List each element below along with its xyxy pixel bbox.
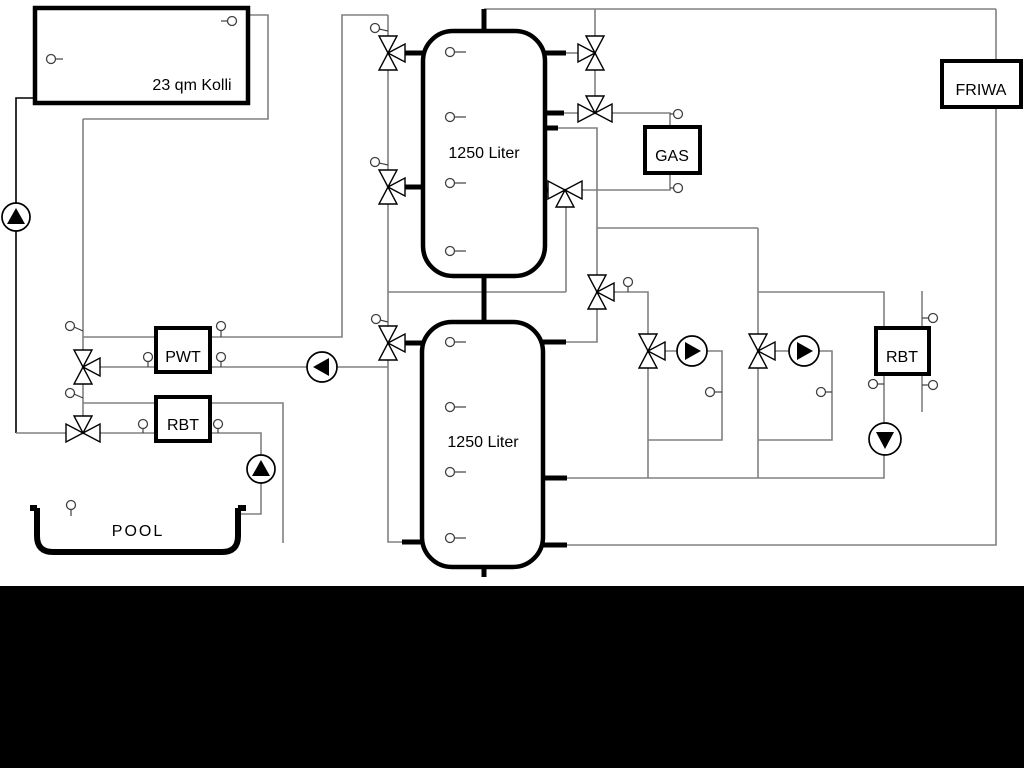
circuit2-sensor: [817, 388, 833, 397]
gas-return-sensor: [670, 184, 683, 193]
three-way-valve-tank1-right-top: [578, 36, 604, 70]
pwt-right-bottom-sensor: [217, 353, 226, 368]
heating-pump-2: [789, 336, 819, 366]
rbt-left-label: RBT: [167, 417, 199, 434]
three-way-valve-solar-pwt: [74, 350, 100, 384]
three-way-valve-gas-return: [548, 181, 582, 207]
collector-return-pipe: [16, 98, 35, 433]
pwt-left-sensor: [144, 353, 153, 368]
three-way-valve-tank2-left: [379, 326, 405, 360]
three-way-valve-tank1-left-mid: [379, 170, 405, 204]
bottom-black-band: [0, 586, 1024, 768]
pwt-right-top-sensor: [217, 322, 226, 338]
gas-supply-sensor: [670, 110, 683, 119]
solar-riser-sensor: [66, 322, 84, 332]
rbtl-right-sensor: [214, 420, 223, 434]
tank1-left-top-sensor: [371, 24, 389, 33]
circuit1-sensor: [706, 388, 723, 397]
pwt-label: PWT: [165, 349, 201, 366]
friwa-return-pipe: [567, 107, 996, 545]
three-way-valve-gas-supply: [578, 96, 612, 122]
tank1-left-mid-sensor: [371, 158, 389, 167]
rbtl-left-sensor: [139, 420, 148, 434]
rbtr-supply-pipe: [758, 292, 884, 328]
pwt-charge-pump: [307, 352, 337, 382]
pool-label: POOL: [112, 523, 164, 540]
rbt-right-label: RBT: [886, 349, 918, 366]
pool-sensor: [67, 501, 76, 517]
three-way-valve-tank1-left-top: [379, 36, 405, 70]
header-valve-sensor: [624, 278, 633, 293]
friwa-label: FRIWA: [956, 82, 1007, 99]
collector-label: 23 qm Kolli: [152, 77, 231, 94]
heating-pump-1: [677, 336, 707, 366]
pool-pump: [247, 455, 275, 483]
tank-left-valve-column: [388, 15, 402, 542]
tank2-left-sensor: [372, 315, 389, 324]
three-way-valve-solar-rbt: [66, 416, 100, 442]
hydraulic-schematic: 23 qm Kolli 1250 Liter 1250 Liter PWT RB…: [0, 0, 1024, 768]
rbtr-secondary-sensor-bottom: [922, 381, 938, 390]
three-way-valve-heating-header: [588, 275, 614, 309]
gas-label: GAS: [655, 148, 689, 165]
rbtl-riser-sensor: [66, 389, 84, 399]
rbtr-return-pipe: [567, 374, 884, 478]
three-way-mixing-valve-circuit-2: [749, 334, 775, 368]
rbtr-return-sensor: [869, 380, 885, 389]
mixer1-supply-pipe: [597, 292, 648, 478]
solar-pump: [2, 203, 30, 231]
tank1-to-tank2-right-pipe: [558, 128, 597, 342]
rbtr-secondary-sensor-top: [922, 314, 938, 323]
rbt-right-pump: [869, 423, 901, 455]
buffer-tank-2-label: 1250 Liter: [447, 434, 519, 451]
buffer-tank-1-label: 1250 Liter: [448, 145, 520, 162]
three-way-mixing-valve-circuit-1: [639, 334, 665, 368]
schematic-page: 23 qm Kolli 1250 Liter 1250 Liter PWT RB…: [0, 0, 1024, 768]
